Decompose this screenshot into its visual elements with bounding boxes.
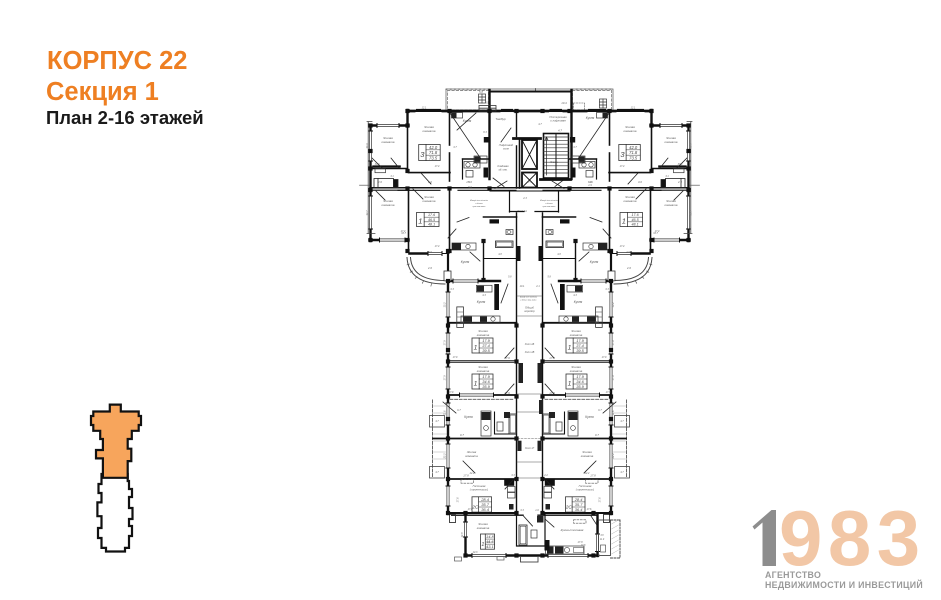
svg-text:22.2: 22.2 bbox=[443, 453, 447, 460]
svg-text:39.5: 39.5 bbox=[482, 348, 490, 353]
svg-text:коридор: коридор bbox=[524, 309, 535, 313]
svg-text:и белья: и белья bbox=[475, 203, 483, 205]
svg-text:983: 983 bbox=[779, 494, 926, 582]
svg-text:17.9: 17.9 bbox=[602, 356, 607, 359]
svg-text:3.3: 3.3 bbox=[511, 474, 515, 477]
svg-text:комната: комната bbox=[382, 140, 395, 144]
svg-text:3.3: 3.3 bbox=[520, 509, 524, 512]
svg-text:17.9: 17.9 bbox=[606, 391, 611, 394]
svg-text:1: 1 bbox=[568, 345, 572, 352]
svg-text:17.6: 17.6 bbox=[456, 497, 460, 503]
svg-text:комната: комната bbox=[624, 199, 637, 203]
svg-text:Кухня: Кухня bbox=[464, 415, 473, 419]
svg-text:4.3: 4.3 bbox=[482, 294, 486, 297]
svg-text:4.7: 4.7 bbox=[558, 129, 562, 133]
svg-text:36.4: 36.4 bbox=[575, 507, 584, 512]
svg-text:2.0: 2.0 bbox=[677, 180, 682, 184]
svg-text:17.6: 17.6 bbox=[632, 213, 640, 217]
svg-text:10.1: 10.1 bbox=[520, 285, 525, 288]
svg-text:14.8: 14.8 bbox=[460, 532, 464, 538]
svg-text:Кухня: Кухня bbox=[574, 300, 583, 304]
svg-text:43.1: 43.1 bbox=[486, 544, 494, 549]
svg-text:2С: 2С bbox=[565, 505, 573, 511]
svg-text:комната: комната bbox=[477, 333, 490, 337]
svg-text:11.6: 11.6 bbox=[443, 410, 447, 415]
svg-text:комната: комната bbox=[581, 454, 594, 458]
svg-text:2.0: 2.0 bbox=[377, 180, 382, 184]
svg-text:комната: комната bbox=[477, 526, 490, 530]
svg-text:Кухня: Кухня bbox=[586, 116, 595, 120]
svg-text:Холл 1В: Холл 1В bbox=[524, 351, 535, 354]
svg-text:Кухня: Кухня bbox=[461, 260, 470, 264]
svg-text:46.5: 46.5 bbox=[632, 218, 640, 222]
svg-text:комната: комната bbox=[423, 129, 436, 133]
svg-text:17.8: 17.8 bbox=[590, 474, 596, 478]
svg-text:и белья: и белья bbox=[545, 203, 553, 205]
svg-text:комната: комната bbox=[624, 129, 637, 133]
svg-text:2.6: 2.6 bbox=[427, 266, 432, 270]
svg-text:17.6: 17.6 bbox=[468, 508, 473, 511]
svg-text:Шкаф для одежды: Шкаф для одежды bbox=[540, 199, 558, 202]
svg-text:5.0: 5.0 bbox=[468, 180, 472, 184]
svg-text:48.1: 48.1 bbox=[428, 223, 435, 227]
svg-text:17.4: 17.4 bbox=[620, 165, 625, 168]
svg-text:33.7: 33.7 bbox=[365, 210, 369, 216]
svg-text:2.6: 2.6 bbox=[626, 266, 631, 270]
svg-text:30.9: 30.9 bbox=[678, 163, 683, 166]
svg-text:36.3: 36.3 bbox=[487, 540, 493, 544]
svg-text:Общий: Общий bbox=[525, 306, 534, 310]
svg-text:3.7: 3.7 bbox=[573, 146, 577, 149]
svg-text:комната: комната bbox=[665, 203, 678, 207]
svg-text:комната: комната bbox=[477, 369, 490, 373]
svg-text:2.3: 2.3 bbox=[522, 197, 527, 200]
svg-text:36.4: 36.4 bbox=[481, 507, 490, 512]
svg-text:3.3: 3.3 bbox=[605, 288, 609, 291]
svg-text:при комнате: при комнате bbox=[543, 206, 557, 208]
svg-text:8.3: 8.3 bbox=[483, 131, 487, 134]
svg-text:17.6: 17.6 bbox=[428, 213, 436, 217]
svg-text:1: 1 bbox=[568, 381, 572, 388]
svg-text:17.6: 17.6 bbox=[598, 497, 602, 503]
svg-text:17.9: 17.9 bbox=[453, 356, 458, 359]
svg-text:Кухня: Кухня bbox=[477, 300, 486, 304]
svg-text:6.7: 6.7 bbox=[598, 409, 602, 412]
svg-text:35.9: 35.9 bbox=[482, 384, 490, 389]
svg-text:План 2-16 этажей: План 2-16 этажей bbox=[46, 107, 204, 128]
svg-text:и лифтовая: и лифтовая bbox=[550, 119, 566, 123]
svg-text:13.2: 13.2 bbox=[611, 302, 615, 308]
svg-text:комната: комната bbox=[423, 199, 436, 203]
svg-text:Кухня: Кухня bbox=[585, 415, 594, 419]
svg-text:6.7: 6.7 bbox=[457, 409, 461, 412]
svg-text:2.6: 2.6 bbox=[427, 251, 432, 254]
svg-text:и белья при комн.: и белья при комн. bbox=[520, 299, 537, 301]
svg-text:17.9: 17.9 bbox=[449, 391, 454, 394]
svg-text:17.4: 17.4 bbox=[435, 245, 440, 248]
svg-text:17.6: 17.6 bbox=[587, 508, 592, 511]
svg-text:73.5: 73.5 bbox=[629, 155, 638, 160]
svg-text:33.7: 33.7 bbox=[653, 232, 658, 235]
svg-text:комната: комната bbox=[570, 333, 583, 337]
svg-text:1.6: 1.6 bbox=[535, 509, 539, 512]
svg-text:1: 1 bbox=[622, 216, 626, 225]
svg-text:Тамбур: Тамбур bbox=[495, 117, 506, 121]
svg-text:Шкаф для одежды: Шкаф для одежды bbox=[520, 296, 538, 299]
svg-text:22.2: 22.2 bbox=[469, 472, 475, 475]
svg-text:35.9: 35.9 bbox=[576, 384, 584, 389]
svg-text:42.0: 42.0 bbox=[629, 145, 638, 150]
svg-text:71.8: 71.8 bbox=[429, 150, 438, 155]
svg-text:( кухня-ниша ): ( кухня-ниша ) bbox=[576, 488, 595, 492]
svg-text:39.5: 39.5 bbox=[576, 348, 584, 353]
svg-text:Шкаф для одежды: Шкаф для одежды bbox=[470, 199, 488, 202]
svg-text:11.0: 11.0 bbox=[600, 539, 605, 541]
svg-text:17.9: 17.9 bbox=[611, 375, 615, 381]
svg-text:46.5: 46.5 bbox=[428, 218, 436, 222]
svg-text:комната: комната bbox=[665, 140, 678, 144]
svg-text:комната: комната bbox=[465, 454, 478, 458]
svg-text:Кухня: Кухня bbox=[590, 260, 599, 264]
svg-text:КОРПУС 22: КОРПУС 22 bbox=[47, 47, 187, 75]
svg-text:17.4: 17.4 bbox=[620, 245, 625, 248]
svg-text:2.2: 2.2 bbox=[543, 474, 548, 477]
svg-text:при комнате: при комнате bbox=[473, 206, 487, 208]
svg-text:1: 1 bbox=[474, 345, 478, 352]
svg-text:9.7: 9.7 bbox=[595, 433, 599, 437]
svg-text:17.8: 17.8 bbox=[463, 474, 469, 478]
svg-text:1: 1 bbox=[418, 216, 422, 225]
svg-text:Кухня-столовая: Кухня-столовая bbox=[561, 528, 584, 532]
svg-text:5.8: 5.8 bbox=[479, 90, 483, 94]
svg-text:30.9: 30.9 bbox=[365, 143, 369, 149]
svg-text:17.9: 17.9 bbox=[443, 375, 447, 381]
svg-text:17.9: 17.9 bbox=[611, 340, 615, 346]
svg-text:71.8: 71.8 bbox=[629, 150, 638, 155]
svg-text:4.8: 4.8 bbox=[557, 253, 561, 256]
svg-text:48.1: 48.1 bbox=[632, 223, 639, 227]
svg-text:1: 1 bbox=[481, 542, 484, 548]
svg-text:Секция 1: Секция 1 bbox=[46, 78, 159, 106]
svg-text:Постирочная: Постирочная bbox=[549, 115, 567, 119]
svg-text:7.9: 7.9 bbox=[528, 180, 532, 184]
svg-text:9.9: 9.9 bbox=[595, 321, 599, 324]
svg-text:10.4: 10.4 bbox=[561, 101, 567, 105]
svg-text:6.0: 6.0 bbox=[428, 180, 432, 184]
svg-text:комната: комната bbox=[570, 369, 583, 373]
svg-text:30.9: 30.9 bbox=[375, 163, 380, 166]
svg-text:33.7: 33.7 bbox=[689, 210, 693, 216]
svg-text:холл: холл bbox=[502, 147, 509, 151]
svg-text:14.3: 14.3 bbox=[473, 551, 478, 554]
svg-text:( кухня-ниша ): ( кухня-ниша ) bbox=[470, 488, 489, 492]
svg-text:3.0: 3.0 bbox=[638, 180, 642, 184]
svg-text:3.3: 3.3 bbox=[450, 288, 454, 291]
svg-text:3.7: 3.7 bbox=[453, 146, 457, 149]
svg-text:22.2: 22.2 bbox=[584, 472, 590, 475]
svg-text:АГЕНТСТВО: АГЕНТСТВО bbox=[765, 570, 821, 580]
svg-text:2.1: 2.1 bbox=[535, 285, 540, 288]
svg-text:4.7: 4.7 bbox=[538, 123, 542, 126]
svg-text:уб. инв.: уб. инв. bbox=[498, 168, 508, 171]
svg-text:22.2: 22.2 bbox=[611, 453, 615, 460]
svg-text:9.9: 9.9 bbox=[460, 321, 464, 324]
svg-text:17.8: 17.8 bbox=[581, 544, 586, 547]
svg-text:4.8: 4.8 bbox=[498, 253, 502, 256]
svg-text:73.5: 73.5 bbox=[429, 155, 438, 160]
svg-text:9.7: 9.7 bbox=[460, 433, 464, 437]
svg-text:42.0: 42.0 bbox=[429, 145, 438, 150]
svg-text:17.9: 17.9 bbox=[443, 340, 447, 346]
svg-text:11.6: 11.6 bbox=[611, 410, 615, 415]
svg-text:1.9: 1.9 bbox=[588, 184, 592, 187]
svg-text:2.6: 2.6 bbox=[625, 251, 630, 254]
svg-text:комната: комната bbox=[382, 203, 395, 207]
svg-text:Холл 1Г: Холл 1Г bbox=[524, 447, 535, 450]
svg-text:1: 1 bbox=[474, 381, 478, 388]
svg-text:4.3: 4.3 bbox=[573, 294, 577, 297]
svg-text:Холл 1Б: Холл 1Б bbox=[524, 343, 535, 346]
svg-text:17.4: 17.4 bbox=[435, 165, 440, 168]
svg-text:33.7: 33.7 bbox=[401, 232, 406, 235]
svg-text:5.0: 5.0 bbox=[468, 186, 472, 189]
svg-text:НЕДВИЖИМОСТИ И ИНВЕСТИЦИЙ: НЕДВИЖИМОСТИ И ИНВЕСТИЦИЙ bbox=[765, 579, 923, 590]
svg-text:30.9: 30.9 bbox=[689, 143, 693, 149]
svg-text:13.2: 13.2 bbox=[443, 302, 447, 308]
